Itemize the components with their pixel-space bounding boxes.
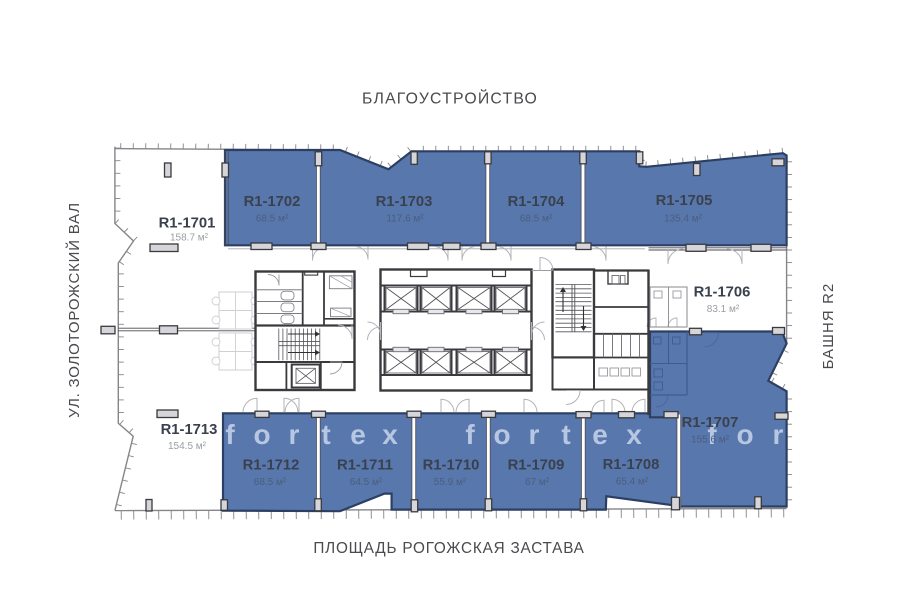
svg-text:УЛ. ЗОЛОТОРОЖСКИЙ ВАЛ: УЛ. ЗОЛОТОРОЖСКИЙ ВАЛ <box>65 202 83 418</box>
svg-text:r: r <box>773 419 784 450</box>
svg-text:R1-1709: R1-1709 <box>508 458 565 474</box>
svg-text:R1-1711: R1-1711 <box>337 458 393 474</box>
svg-text:83.1 м²: 83.1 м² <box>707 304 740 315</box>
svg-text:ПЛОЩАДЬ РОГОЖСКАЯ ЗАСТАВА: ПЛОЩАДЬ РОГОЖСКАЯ ЗАСТАВА <box>313 540 584 557</box>
svg-text:155.6 м²: 155.6 м² <box>691 435 730 446</box>
svg-text:158.7 м²: 158.7 м² <box>170 233 209 244</box>
svg-text:f: f <box>225 419 235 450</box>
svg-text:68.5 м²: 68.5 м² <box>256 214 289 225</box>
svg-text:R1-1713: R1-1713 <box>161 422 218 438</box>
svg-text:БЛАГОУСТРОЙСТВО: БЛАГОУСТРОЙСТВО <box>362 89 538 108</box>
svg-text:135.4 м²: 135.4 м² <box>664 214 703 225</box>
svg-text:R1-1701: R1-1701 <box>159 216 216 232</box>
svg-text:e: e <box>350 419 366 450</box>
svg-text:R1-1707: R1-1707 <box>682 415 739 431</box>
svg-text:r: r <box>289 419 300 450</box>
svg-text:64.5 м²: 64.5 м² <box>350 477 383 488</box>
svg-text:R1-1705: R1-1705 <box>656 193 713 209</box>
svg-text:R1-1706: R1-1706 <box>694 285 751 301</box>
svg-text:R1-1712: R1-1712 <box>243 458 300 474</box>
svg-text:R1-1704: R1-1704 <box>508 194 566 210</box>
svg-text:R1-1702: R1-1702 <box>244 194 301 210</box>
svg-text:f: f <box>465 419 475 450</box>
svg-text:68.5 м²: 68.5 м² <box>520 214 553 225</box>
svg-text:t: t <box>561 419 570 450</box>
svg-text:r: r <box>529 419 540 450</box>
svg-text:x: x <box>382 419 398 450</box>
svg-text:o: o <box>253 419 270 450</box>
svg-text:117.6 м²: 117.6 м² <box>386 214 424 225</box>
svg-text:R1-1708: R1-1708 <box>603 457 660 473</box>
svg-text:БАШНЯ R2: БАШНЯ R2 <box>821 283 837 370</box>
svg-text:o: o <box>736 419 753 450</box>
svg-text:e: e <box>592 419 608 450</box>
svg-text:R1-1703: R1-1703 <box>376 194 433 210</box>
svg-text:55.9 м²: 55.9 м² <box>434 477 467 488</box>
svg-text:t: t <box>321 419 330 450</box>
svg-text:67 м²: 67 м² <box>525 477 550 488</box>
svg-text:65.4 м²: 65.4 м² <box>616 477 649 488</box>
svg-text:R1-1710: R1-1710 <box>423 458 480 474</box>
svg-text:154.5 м²: 154.5 м² <box>168 441 207 452</box>
svg-text:x: x <box>626 419 642 450</box>
svg-text:68.5 м²: 68.5 м² <box>254 477 287 488</box>
svg-text:o: o <box>493 419 510 450</box>
